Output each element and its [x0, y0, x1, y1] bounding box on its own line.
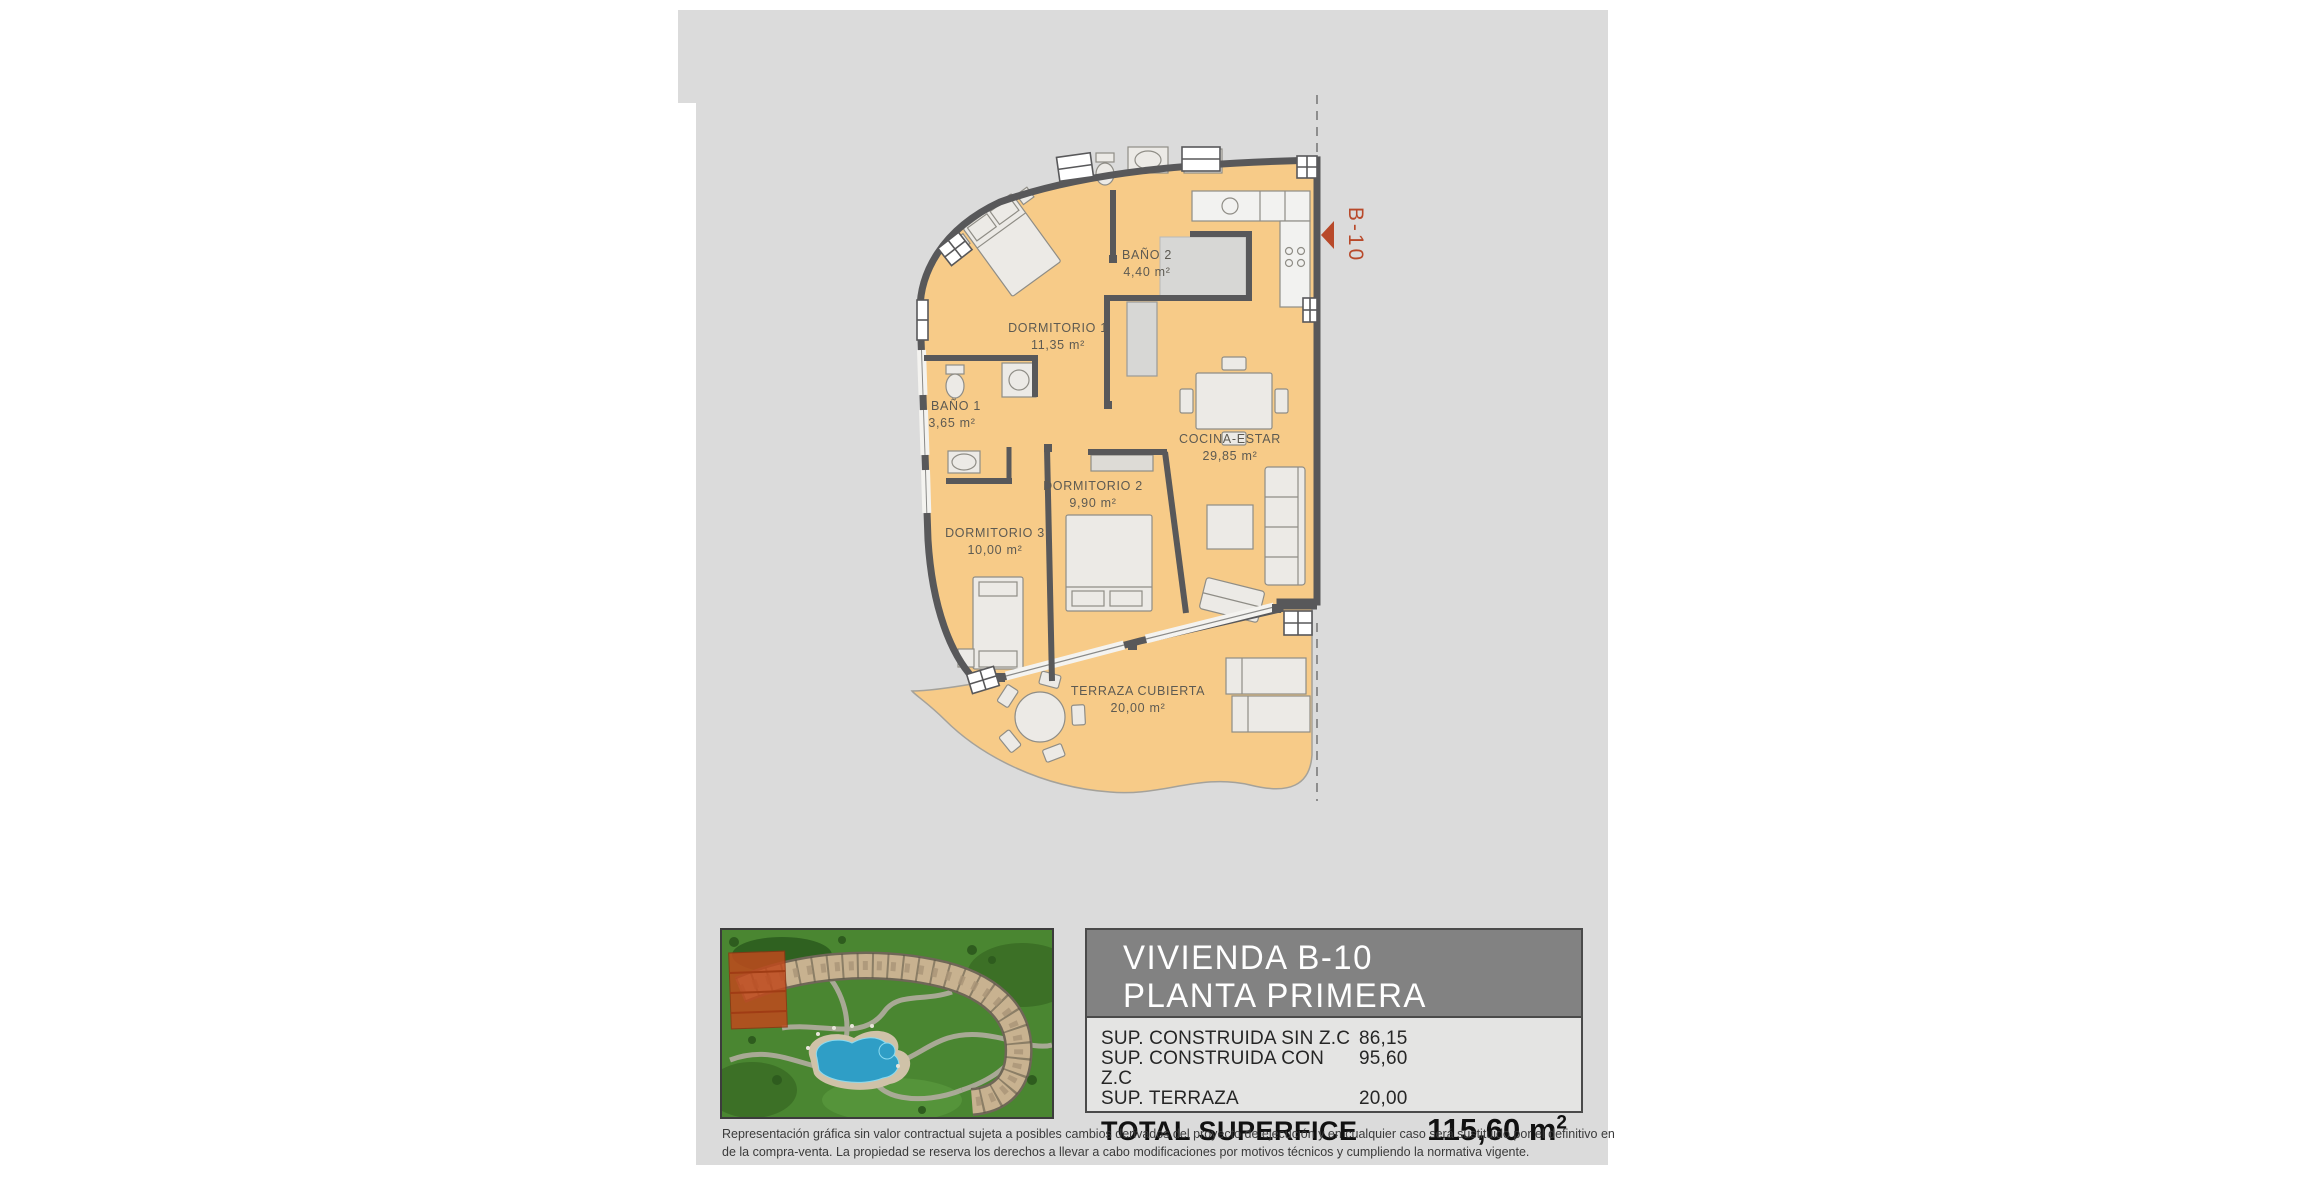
hall-closet: [1127, 302, 1157, 376]
unit-title: VIVIENDA B-10: [1123, 939, 1567, 977]
window-icon: [1303, 298, 1317, 322]
room-area: 20,00 m²: [1111, 701, 1166, 715]
room-area: 3,65 m²: [928, 416, 975, 430]
page: { "document": { "background": "#dbdbdb",…: [0, 0, 2304, 1185]
unit-marker: B-10: [1321, 207, 1367, 263]
window-icon: [1284, 611, 1312, 635]
title-block-header: VIVIENDA B-10 PLANTA PRIMERA: [1087, 930, 1581, 1018]
room-label: DORMITORIO 2: [1043, 479, 1143, 493]
floor-plan: BAÑO 2 4,40 m² DORMITORIO 1 11,35 m² BAÑ…: [860, 95, 1420, 815]
vent-box: [1056, 153, 1093, 181]
coffee-table-symbol: [1207, 505, 1253, 549]
room-area: 11,35 m²: [1031, 338, 1085, 352]
document-sheet-notch: [678, 10, 696, 103]
window-icon: [1297, 156, 1317, 178]
surface-label: SUP. CONSTRUIDA SIN Z.C: [1101, 1029, 1359, 1049]
room-label: BAÑO 1: [931, 399, 981, 413]
room-label: BAÑO 2: [1122, 248, 1172, 262]
entry-vestibule: [1160, 237, 1246, 296]
surface-row: SUP. CONSTRUIDA CON Z.C 95,60: [1101, 1049, 1581, 1089]
aerial-view-image: [722, 930, 1052, 1117]
room-label: DORMITORIO 3: [945, 526, 1045, 540]
surface-row: SUP. TERRAZA 20,00: [1101, 1089, 1581, 1109]
unit-marker-arrow-icon: [1321, 221, 1334, 249]
disclaimer-line-1: Representación gráfica sin valor contrac…: [722, 1126, 1615, 1144]
highlighted-unit-block: [729, 951, 788, 1029]
vent-box: [1182, 147, 1220, 171]
surface-value: 95,60: [1359, 1049, 1581, 1089]
room-area: 10,00 m²: [968, 543, 1023, 557]
surface-value: 86,15: [1359, 1029, 1581, 1049]
surface-row: SUP. CONSTRUIDA SIN Z.C 86,15: [1101, 1029, 1581, 1049]
surface-label: SUP. CONSTRUIDA CON Z.C: [1101, 1049, 1359, 1089]
surface-label: SUP. TERRAZA: [1101, 1089, 1359, 1109]
room-label: DORMITORIO 1: [1008, 321, 1108, 335]
window-icon: [917, 300, 928, 340]
room-label: TERRAZA CUBIERTA: [1071, 684, 1205, 698]
floor-title: PLANTA PRIMERA: [1123, 977, 1567, 1015]
surface-value: 20,00: [1359, 1089, 1581, 1109]
sofa-symbol: [1265, 467, 1305, 585]
room-area: 29,85 m²: [1203, 449, 1258, 463]
room-area: 4,40 m²: [1123, 265, 1170, 279]
disclaimer: Representación gráfica sin valor contrac…: [722, 1126, 1615, 1161]
unit-marker-label: B-10: [1344, 207, 1367, 263]
floor-plan-area: BAÑO 2 4,40 m² DORMITORIO 1 11,35 m² BAÑ…: [860, 95, 1420, 815]
title-block: VIVIENDA B-10 PLANTA PRIMERA SUP. CONSTR…: [1085, 928, 1583, 1113]
room-area: 9,90 m²: [1069, 496, 1116, 510]
room-label: COCINA-ESTAR: [1179, 432, 1281, 446]
disclaimer-line-2: de la compra-venta. La propiedad se rese…: [722, 1144, 1615, 1162]
aerial-view-inset: [720, 928, 1054, 1119]
